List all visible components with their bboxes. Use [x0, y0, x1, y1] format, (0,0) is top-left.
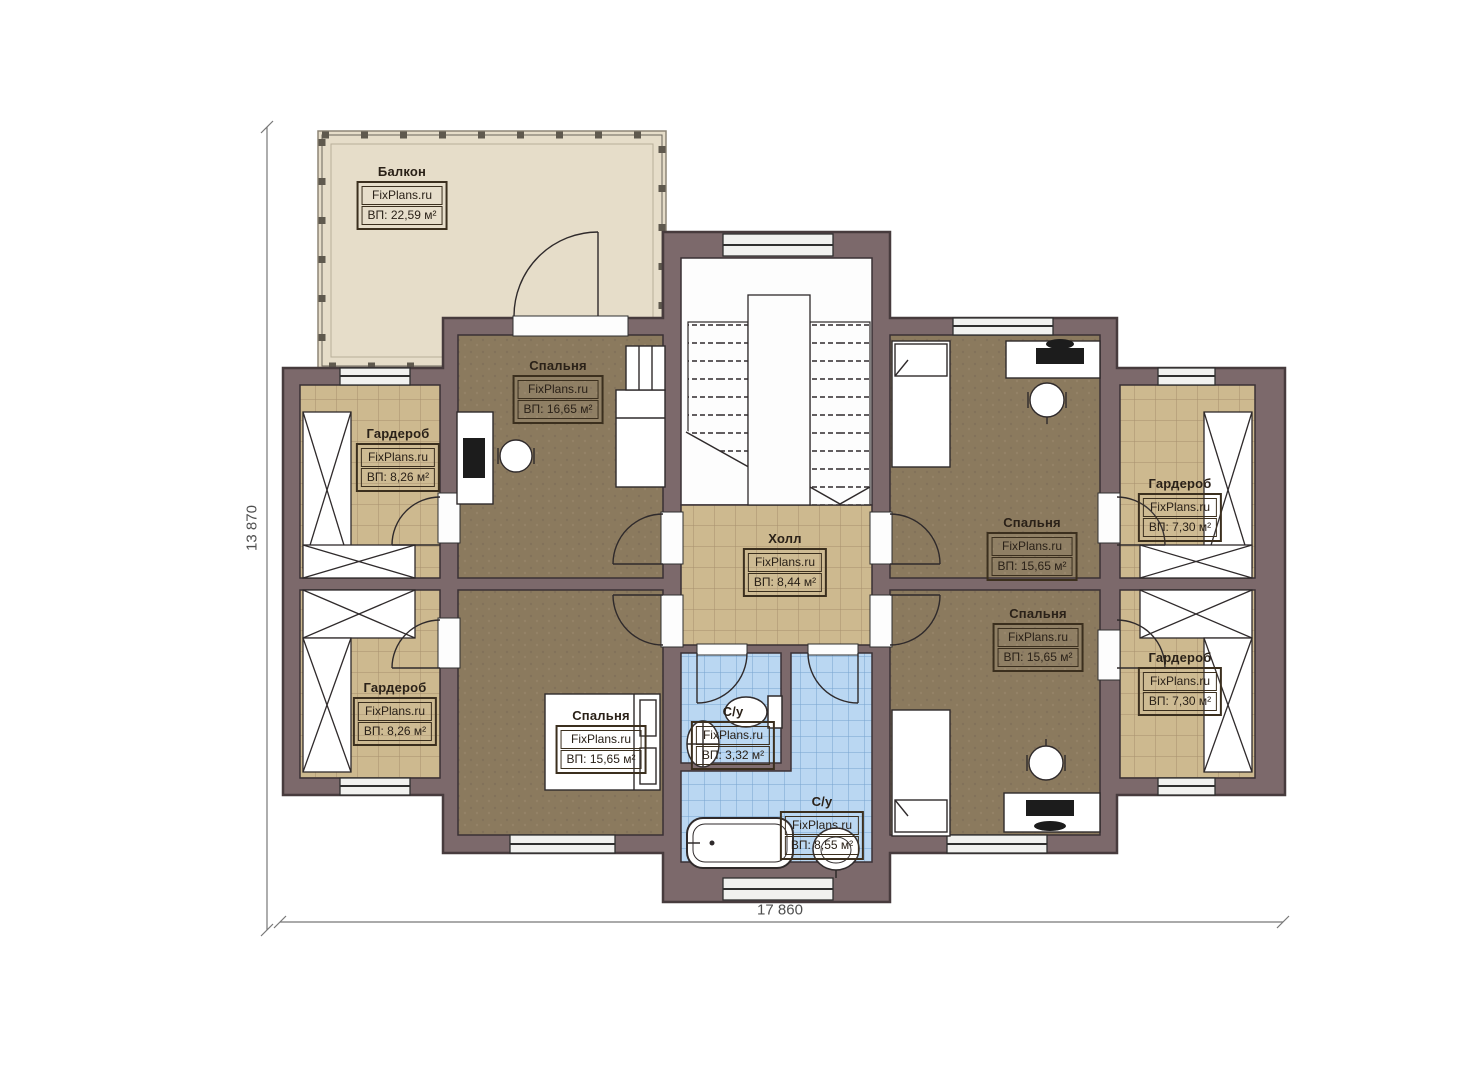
dimension-label-horizontal: 17 860 [757, 902, 803, 919]
room-label-bedroom-tl: Спальня FixPlans.ru ВП: 16,65 м² [513, 358, 604, 424]
area-row: ВП: 15,65 м² [561, 750, 642, 769]
room-label-bedroom-tr: Спальня FixPlans.ru ВП: 15,65 м² [987, 515, 1078, 581]
window [947, 835, 1047, 853]
area-row: ВП: 16,65 м² [518, 400, 599, 419]
label-box: FixPlans.ru ВП: 7,30 м² [1138, 493, 1222, 542]
desk [1006, 339, 1100, 378]
window [953, 318, 1053, 335]
watermark-row: FixPlans.ru [696, 726, 770, 745]
door-opening [1098, 630, 1120, 680]
watermark-row: FixPlans.ru [992, 537, 1073, 556]
label-box: FixPlans.ru ВП: 16,65 м² [513, 375, 604, 424]
area-row: ВП: 15,65 м² [992, 557, 1073, 576]
area-row: ВП: 8,26 м² [361, 468, 435, 487]
watermark-row: FixPlans.ru [518, 380, 599, 399]
room-name: Спальня [993, 606, 1084, 621]
door-opening [697, 644, 747, 655]
door-opening [808, 644, 858, 655]
room-name: С/у [691, 704, 775, 719]
watermark-row: FixPlans.ru [358, 702, 432, 721]
door-opening [870, 512, 892, 564]
window [1158, 778, 1215, 795]
watermark-row: FixPlans.ru [998, 628, 1079, 647]
label-box: FixPlans.ru ВП: 8,44 м² [743, 548, 827, 597]
bathtub [687, 818, 793, 868]
stair-railing [748, 295, 810, 505]
label-box: FixPlans.ru ВП: 8,26 м² [353, 697, 437, 746]
room-label-bath-big: С/у FixPlans.ru ВП: 8,55 м² [780, 794, 864, 860]
dresser [626, 346, 665, 390]
room-label-bedroom-br: Спальня FixPlans.ru ВП: 15,65 м² [993, 606, 1084, 672]
room-label-wardrobe-rt: Гардероб FixPlans.ru ВП: 7,30 м² [1138, 476, 1222, 542]
area-row: ВП: 7,30 м² [1143, 692, 1217, 711]
area-row: ВП: 15,65 м² [998, 648, 1079, 667]
floor-plan-drawing [0, 0, 1473, 1080]
watermark-row: FixPlans.ru [362, 186, 443, 205]
door-opening [661, 595, 683, 647]
desk [457, 412, 493, 504]
area-row: ВП: 22,59 м² [362, 206, 443, 225]
watermark-row: FixPlans.ru [1143, 672, 1217, 691]
area-row: ВП: 8,26 м² [358, 722, 432, 741]
door-opening [1098, 493, 1120, 543]
window [340, 368, 410, 385]
label-box: FixPlans.ru ВП: 7,30 м² [1138, 667, 1222, 716]
door-opening [870, 595, 892, 647]
room-label-bath-small: С/у FixPlans.ru ВП: 3,32 м² [691, 704, 775, 770]
room-label-wardrobe-lb: Гардероб FixPlans.ru ВП: 8,26 м² [353, 680, 437, 746]
watermark-row: FixPlans.ru [785, 816, 859, 835]
floor-plan: Балкон FixPlans.ru ВП: 22,59 м² Спальня … [0, 0, 1473, 1080]
room-name: Гардероб [356, 426, 440, 441]
room-label-hall: Холл FixPlans.ru ВП: 8,44 м² [743, 531, 827, 597]
dimension-label-vertical: 13 870 [244, 505, 261, 551]
label-box: FixPlans.ru ВП: 15,65 м² [993, 623, 1084, 672]
room-name: С/у [780, 794, 864, 809]
closet [303, 638, 351, 772]
door-opening [438, 618, 460, 668]
closet [303, 590, 415, 638]
window [510, 835, 615, 853]
room-label-wardrobe-lt: Гардероб FixPlans.ru ВП: 8,26 м² [356, 426, 440, 492]
label-box: FixPlans.ru ВП: 8,55 м² [780, 811, 864, 860]
window [723, 878, 833, 900]
room-label-bedroom-bl: Спальня FixPlans.ru ВП: 15,65 м² [556, 708, 647, 774]
room-name: Холл [743, 531, 827, 546]
window [340, 778, 410, 795]
room-label-wardrobe-rb: Гардероб FixPlans.ru ВП: 7,30 м² [1138, 650, 1222, 716]
door-opening [513, 316, 628, 336]
single-bed [616, 390, 665, 487]
area-row: ВП: 8,44 м² [748, 573, 822, 592]
window [1158, 368, 1215, 385]
watermark-row: FixPlans.ru [361, 448, 435, 467]
watermark-row: FixPlans.ru [748, 553, 822, 572]
closet [1140, 545, 1252, 578]
single-bed [892, 710, 950, 836]
room-name: Гардероб [353, 680, 437, 695]
label-box: FixPlans.ru ВП: 8,26 м² [356, 443, 440, 492]
area-row: ВП: 7,30 м² [1143, 518, 1217, 537]
window [723, 234, 833, 256]
room-label-balcony: Балкон FixPlans.ru ВП: 22,59 м² [357, 164, 448, 230]
area-row: ВП: 8,55 м² [785, 836, 859, 855]
closet [1140, 590, 1252, 638]
room-name: Спальня [513, 358, 604, 373]
door-opening [661, 512, 683, 564]
room-name: Гардероб [1138, 476, 1222, 491]
closet [303, 545, 415, 578]
room-name: Спальня [987, 515, 1078, 530]
label-box: FixPlans.ru ВП: 3,32 м² [691, 721, 775, 770]
room-name: Гардероб [1138, 650, 1222, 665]
single-bed [892, 341, 950, 467]
label-box: FixPlans.ru ВП: 22,59 м² [357, 181, 448, 230]
watermark-row: FixPlans.ru [1143, 498, 1217, 517]
watermark-row: FixPlans.ru [561, 730, 642, 749]
area-row: ВП: 3,32 м² [696, 746, 770, 765]
room-name: Спальня [556, 708, 647, 723]
label-box: FixPlans.ru ВП: 15,65 м² [556, 725, 647, 774]
desk [1004, 793, 1100, 832]
room-name: Балкон [357, 164, 448, 179]
label-box: FixPlans.ru ВП: 15,65 м² [987, 532, 1078, 581]
